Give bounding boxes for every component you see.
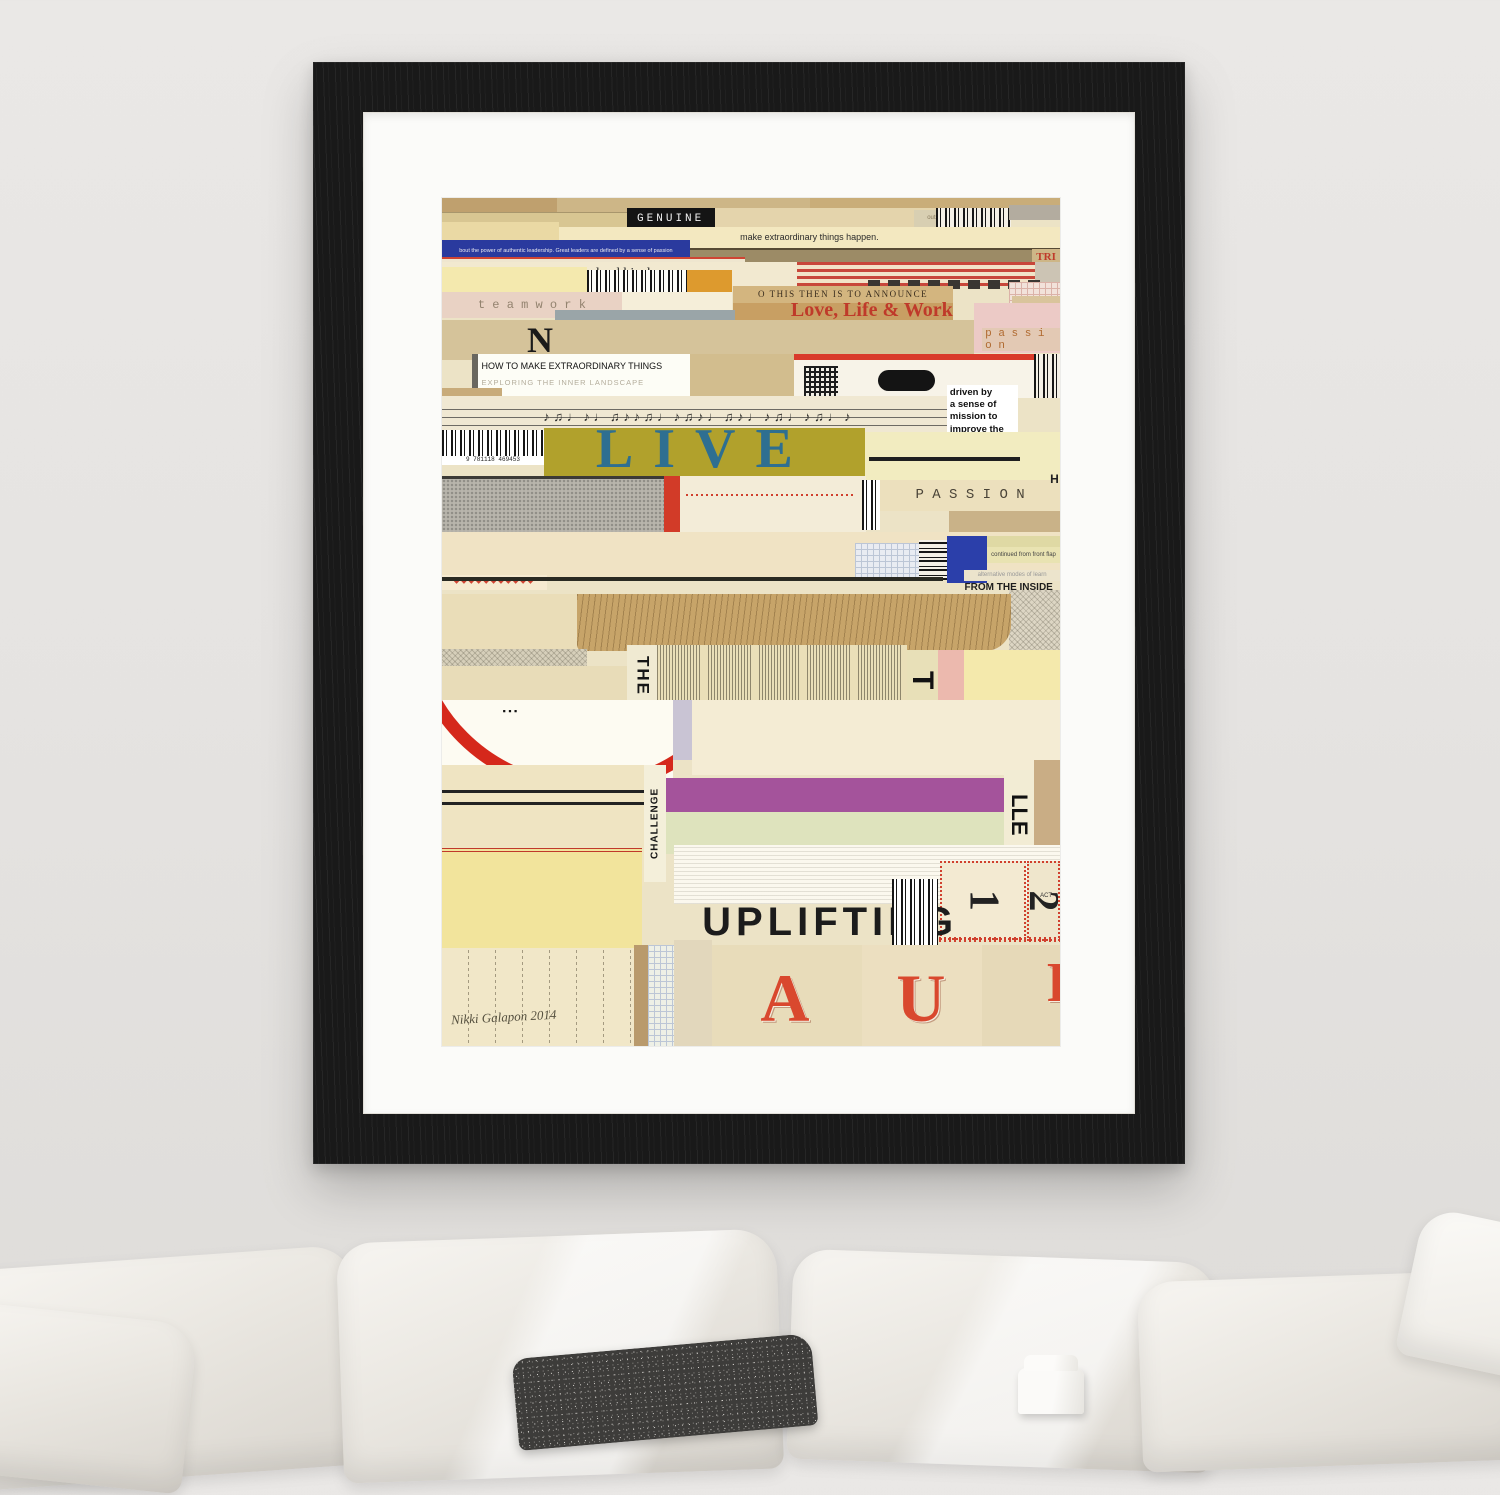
cont-flap-text: continued from front flap	[987, 547, 1060, 562]
gray-corner-block	[1035, 262, 1060, 282]
tan-mid-block	[690, 354, 794, 398]
pillow-front-left	[0, 1299, 198, 1494]
black-rule-b	[442, 802, 644, 805]
letter-u: U	[872, 950, 971, 1046]
qr-code	[804, 366, 838, 398]
love-life-work-text: Love, Life & Work	[732, 296, 1012, 322]
squares-row: ▪ ▪ ▪	[482, 705, 538, 719]
living-room-scene: GENUINEoutside of the comfort zonmake ex…	[0, 0, 1500, 1414]
black-long-rule	[442, 577, 943, 581]
graph-paper-strip	[648, 945, 674, 1046]
vase	[1018, 1368, 1084, 1414]
letter-a: A	[726, 950, 843, 1046]
tall-barcode	[892, 879, 938, 948]
yellow-column	[964, 650, 1060, 705]
howto-text: HOW TO MAKE EXTRAORDINARY THINGS	[478, 358, 685, 376]
graph-block	[855, 543, 919, 578]
red-perforation-rule	[939, 937, 1060, 941]
exploring-text: EXPLORING THE INNER LANDSCAPE	[478, 377, 685, 390]
black-rule-right	[869, 457, 1020, 461]
the-vertical: THE	[627, 645, 657, 708]
cream-left-block	[442, 594, 577, 651]
black-rule-a	[442, 790, 644, 793]
black-pill	[878, 370, 935, 391]
vase-lid	[1024, 1355, 1078, 1371]
crosshatch-right-col	[1009, 590, 1060, 651]
kraft-column-right	[1034, 760, 1060, 858]
kraft-edge-strip	[634, 945, 648, 1046]
picture-frame: GENUINEoutside of the comfort zonmake ex…	[313, 62, 1185, 1164]
challenge-vertical: CHALLENGE	[644, 765, 666, 882]
yellow-tall-block	[442, 848, 642, 948]
big-cream-block	[692, 700, 1060, 775]
artwork-collage: GENUINEoutside of the comfort zonmake ex…	[442, 198, 1060, 1046]
artist-signature: Nikki Galapon 2014	[448, 998, 615, 1034]
purple-strip	[666, 778, 1004, 812]
gray-sliver-top	[1009, 205, 1060, 220]
mini-barcode	[862, 480, 880, 531]
lavender-sliver	[673, 700, 692, 760]
beige-column	[674, 940, 712, 1046]
mat-board: GENUINEoutside of the comfort zonmake ex…	[363, 112, 1135, 1114]
passion-typed-row: P A S S I O N	[880, 480, 1060, 511]
gray-halftone-block	[442, 476, 664, 532]
kraft-script-strip	[577, 594, 1011, 651]
h-fragment: H	[1049, 469, 1060, 490]
partial-letter: F	[1044, 950, 1060, 1018]
red-dotted-rule	[686, 494, 853, 497]
tan-strip-512	[949, 511, 1060, 532]
isbn-barcode	[442, 430, 544, 455]
driven-box: driven by a sense of mission to improve …	[947, 385, 1018, 437]
pink-column	[938, 650, 964, 705]
isbn-digits: 9 781118 469453	[442, 456, 544, 465]
barcode-right-col	[1034, 354, 1060, 398]
passion-small-row: p a s s i o n	[982, 328, 1060, 352]
olive-band	[690, 248, 1060, 262]
red-vbar	[664, 476, 680, 532]
barcode-v-block	[919, 540, 947, 581]
crosshatch-strip	[442, 649, 587, 666]
cream-wide-strip	[680, 476, 866, 532]
